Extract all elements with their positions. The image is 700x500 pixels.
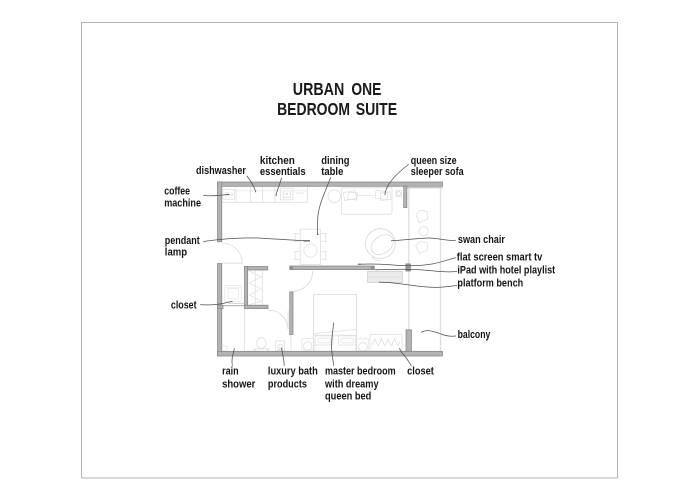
svg-text:pendant: pendant xyxy=(165,235,201,247)
svg-text:kitchen: kitchen xyxy=(260,154,295,167)
svg-text:rain: rain xyxy=(222,366,238,378)
svg-text:shower: shower xyxy=(222,379,255,391)
svg-text:essentials: essentials xyxy=(260,167,306,179)
svg-text:sleeper sofa: sleeper sofa xyxy=(411,166,464,178)
svg-text:platform bench: platform bench xyxy=(457,278,523,290)
svg-text:machine: machine xyxy=(164,198,201,210)
svg-text:with dreamy: with dreamy xyxy=(324,379,379,391)
svg-text:BEDROOM: BEDROOM xyxy=(277,101,350,120)
svg-text:coffee: coffee xyxy=(164,186,190,198)
svg-text:closet: closet xyxy=(407,366,434,378)
svg-text:master bedroom: master bedroom xyxy=(325,366,396,378)
svg-text:table: table xyxy=(321,167,343,179)
svg-text:closet: closet xyxy=(171,300,197,312)
svg-text:URBAN: URBAN xyxy=(293,81,344,100)
svg-text:queen bed: queen bed xyxy=(325,391,371,403)
svg-text:dishwasher: dishwasher xyxy=(196,165,246,177)
svg-text:iPad with hotel playlist: iPad with hotel playlist xyxy=(457,265,555,277)
svg-text:flat screen smart tv: flat screen smart tv xyxy=(457,252,543,264)
svg-text:SUITE: SUITE xyxy=(356,101,397,120)
svg-text:swan chair: swan chair xyxy=(458,234,505,246)
svg-text:queen size: queen size xyxy=(411,155,457,167)
svg-text:products: products xyxy=(268,379,307,391)
svg-text:luxury bath: luxury bath xyxy=(268,366,318,378)
svg-text:ONE: ONE xyxy=(351,81,381,100)
svg-text:lamp: lamp xyxy=(165,247,187,259)
svg-text:dining: dining xyxy=(321,155,349,167)
svg-text:balcony: balcony xyxy=(458,329,491,341)
